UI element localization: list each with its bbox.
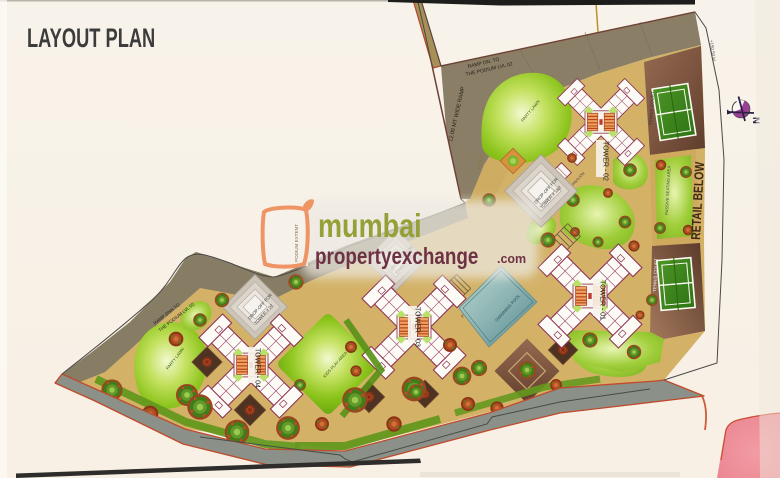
- svg-text:LAYOUT PLAN: LAYOUT PLAN: [27, 23, 155, 53]
- svg-text:.com: .com: [497, 252, 526, 266]
- svg-text:propertyexchange: propertyexchange: [315, 244, 478, 269]
- svg-text:mumbai: mumbai: [318, 209, 422, 245]
- svg-text:TOWER - 02: TOWER - 02: [602, 141, 609, 181]
- svg-text:PODIUM EXTENT: PODIUM EXTENT: [294, 224, 299, 262]
- svg-text:TOWER - 01: TOWER - 01: [599, 280, 606, 320]
- svg-text:TOWER - 04: TOWER - 04: [254, 348, 261, 388]
- svg-text:TOWER - 03: TOWER - 03: [414, 307, 421, 347]
